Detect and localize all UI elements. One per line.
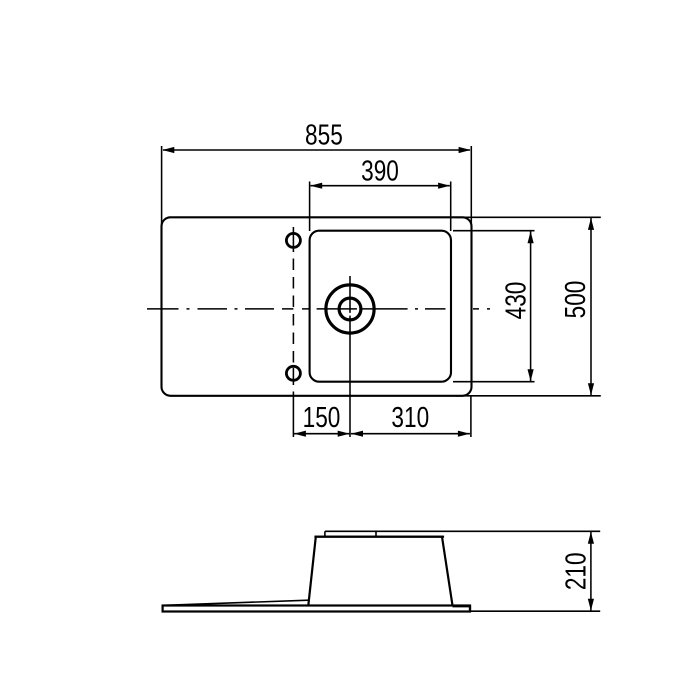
svg-text:310: 310: [391, 400, 429, 433]
svg-text:500: 500: [558, 281, 591, 319]
svg-text:390: 390: [361, 154, 399, 187]
svg-text:150: 150: [303, 400, 341, 433]
svg-text:855: 855: [305, 118, 343, 151]
svg-text:210: 210: [559, 552, 592, 590]
svg-text:430: 430: [499, 282, 532, 320]
